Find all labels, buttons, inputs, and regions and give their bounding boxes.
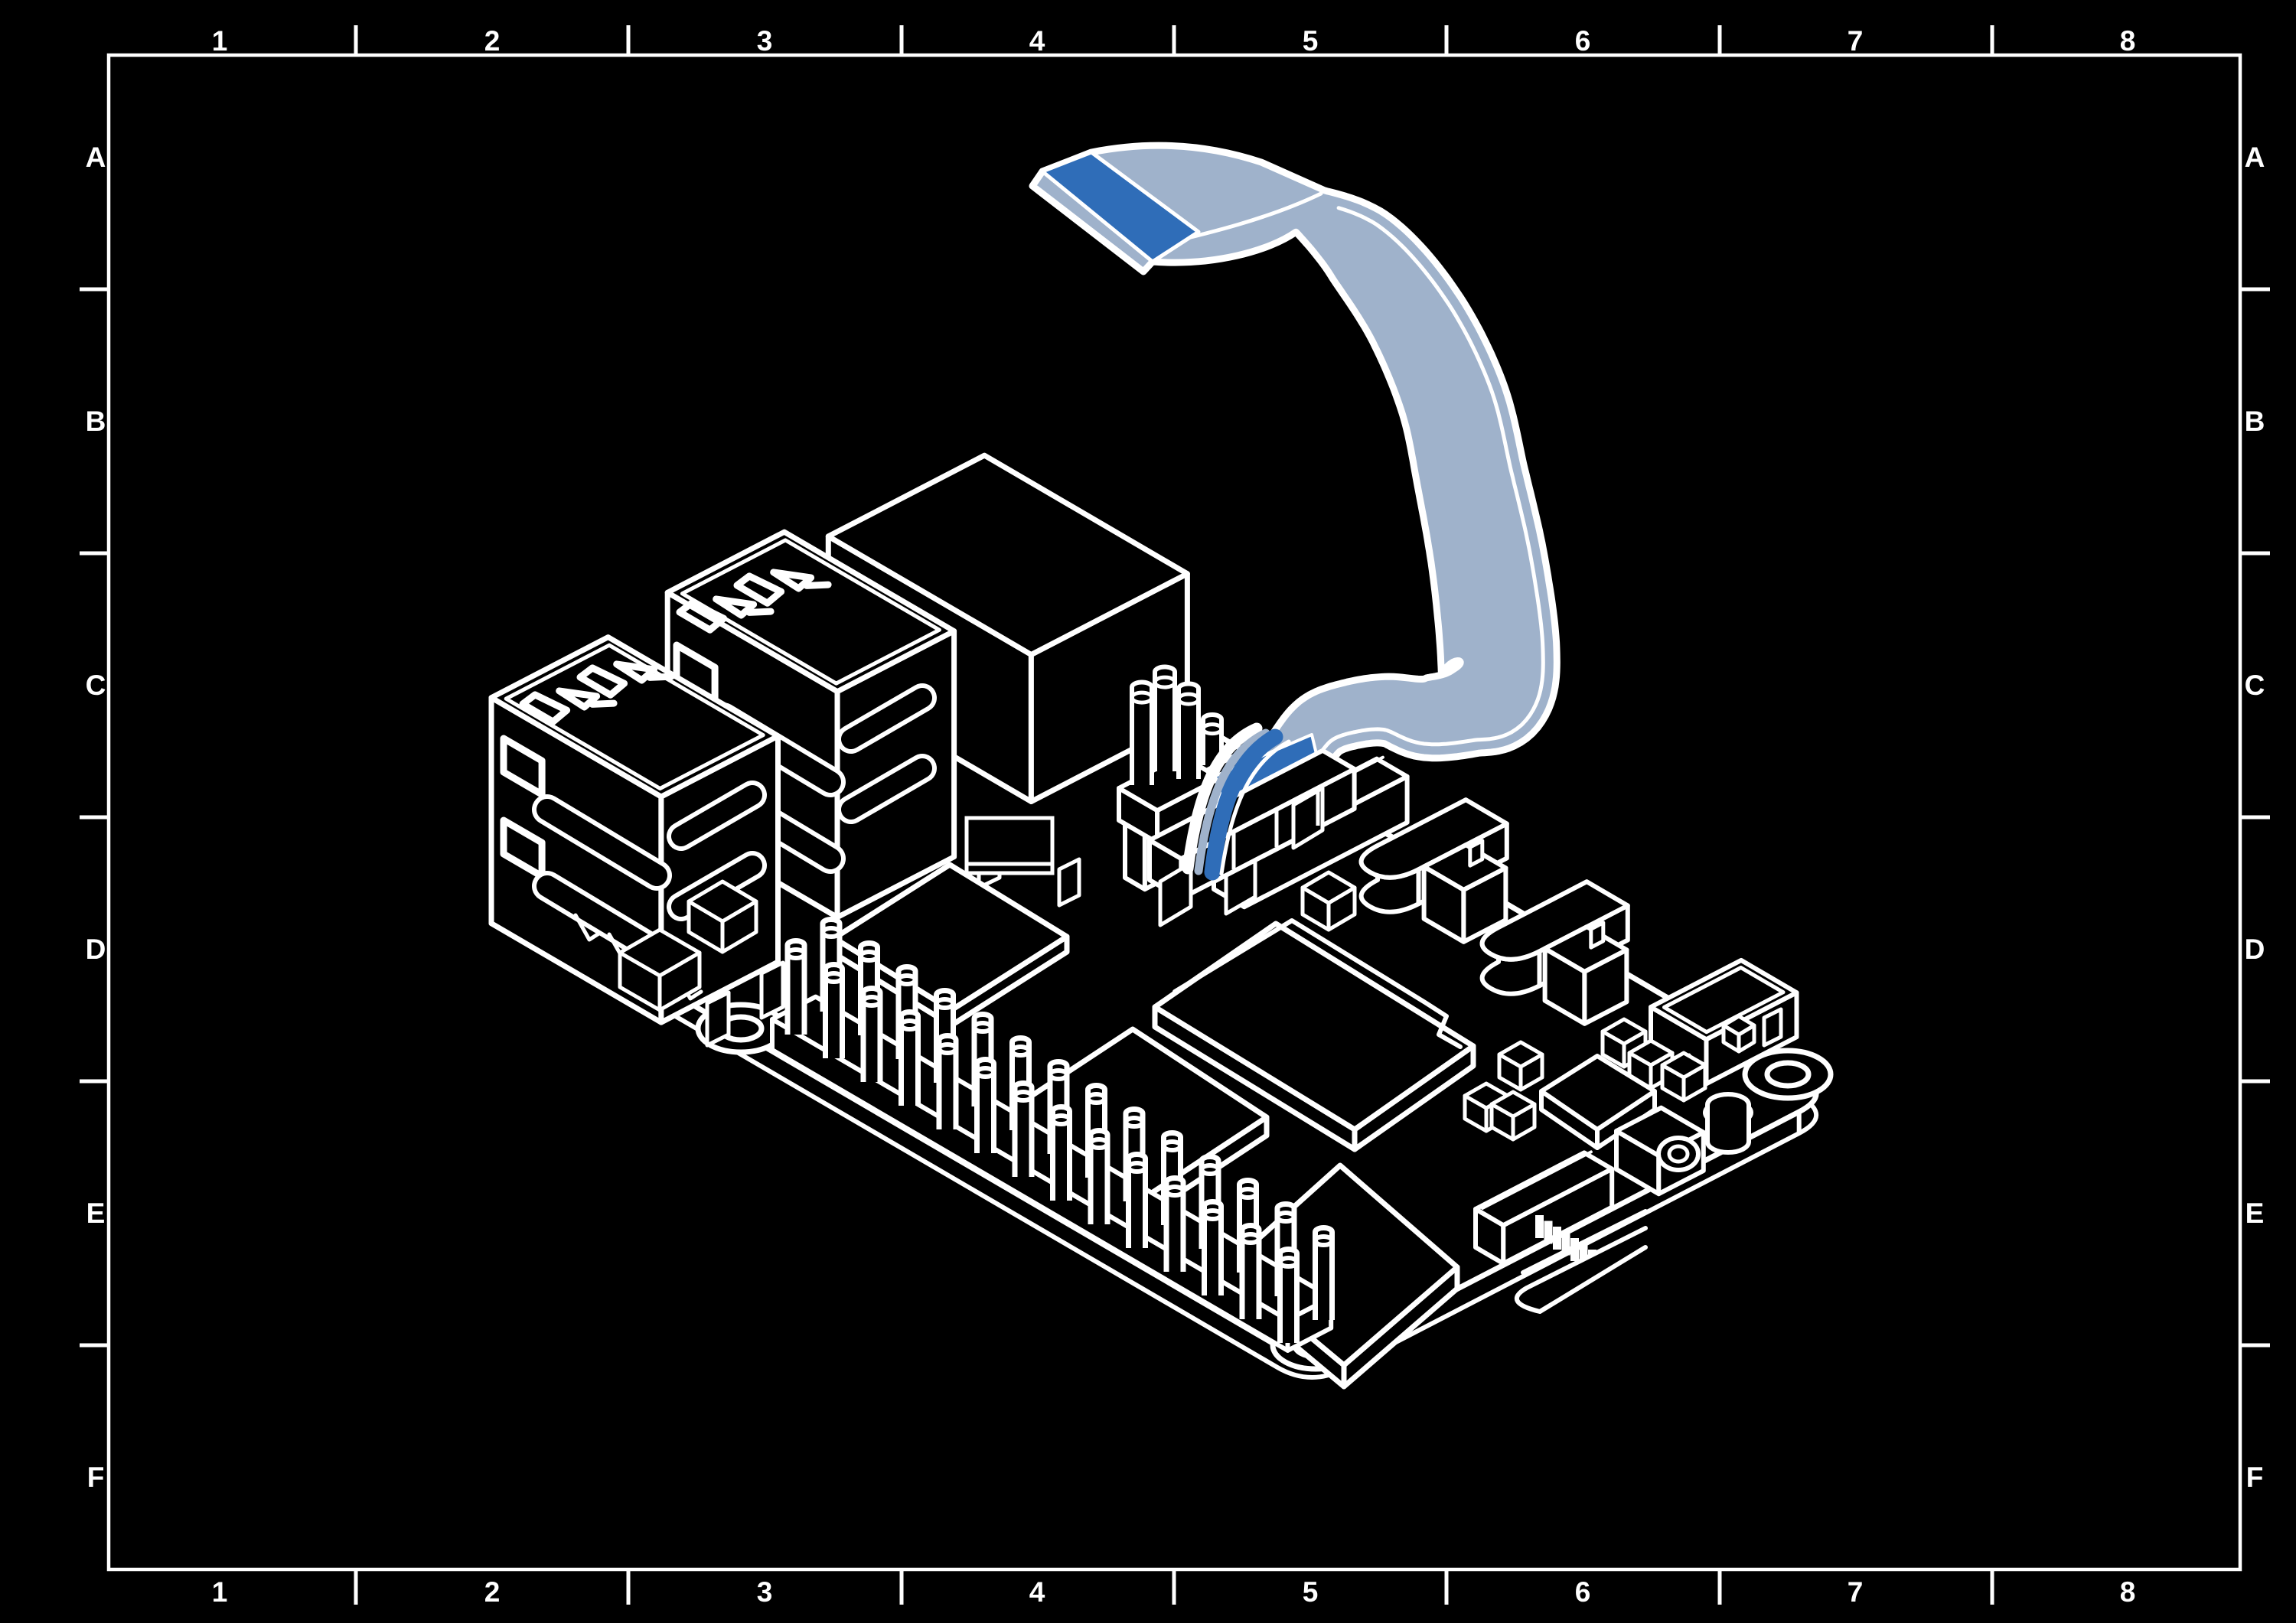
svg-text:7: 7: [1848, 25, 1864, 57]
svg-text:C: C: [86, 670, 106, 701]
svg-text:A: A: [2245, 142, 2265, 173]
svg-text:8: 8: [2120, 25, 2136, 57]
svg-text:6: 6: [1575, 25, 1591, 57]
svg-text:E: E: [2245, 1198, 2265, 1229]
svg-text:4: 4: [1029, 25, 1045, 57]
svg-text:B: B: [86, 406, 106, 437]
svg-text:F: F: [87, 1462, 105, 1493]
svg-text:7: 7: [1848, 1576, 1864, 1608]
svg-text:C: C: [2245, 670, 2265, 701]
svg-text:8: 8: [2120, 1576, 2136, 1608]
svg-text:6: 6: [1575, 1576, 1591, 1608]
svg-text:5: 5: [1303, 1576, 1319, 1608]
svg-text:F: F: [2246, 1462, 2264, 1493]
svg-text:D: D: [86, 934, 106, 965]
svg-text:A: A: [86, 142, 106, 173]
svg-text:2: 2: [484, 25, 501, 57]
svg-text:4: 4: [1029, 1576, 1045, 1608]
svg-text:B: B: [2245, 406, 2265, 437]
svg-text:D: D: [2245, 934, 2265, 965]
svg-text:1: 1: [212, 25, 228, 57]
svg-text:3: 3: [757, 1576, 773, 1608]
svg-text:3: 3: [757, 25, 773, 57]
svg-text:5: 5: [1303, 25, 1319, 57]
svg-text:2: 2: [484, 1576, 501, 1608]
svg-text:E: E: [86, 1198, 106, 1229]
svg-text:1: 1: [212, 1576, 228, 1608]
